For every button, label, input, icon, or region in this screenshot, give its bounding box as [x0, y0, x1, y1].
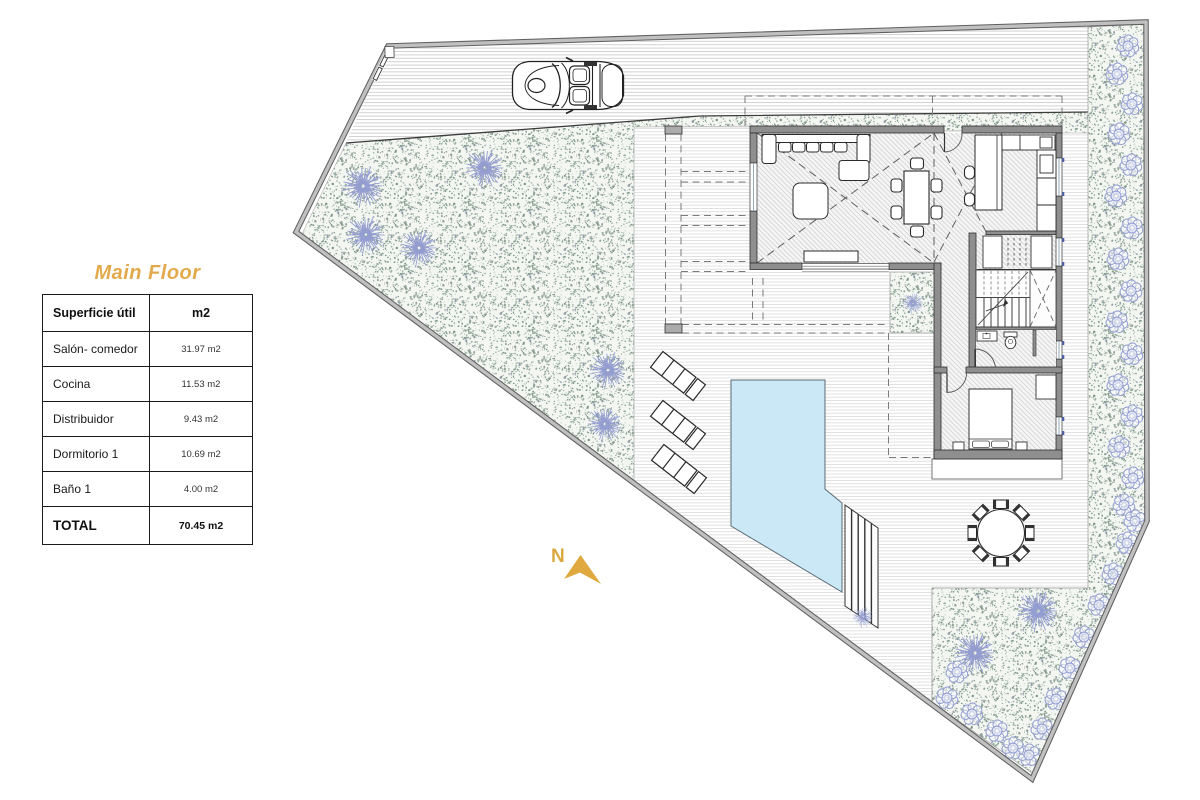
- svg-text:N: N: [551, 546, 565, 567]
